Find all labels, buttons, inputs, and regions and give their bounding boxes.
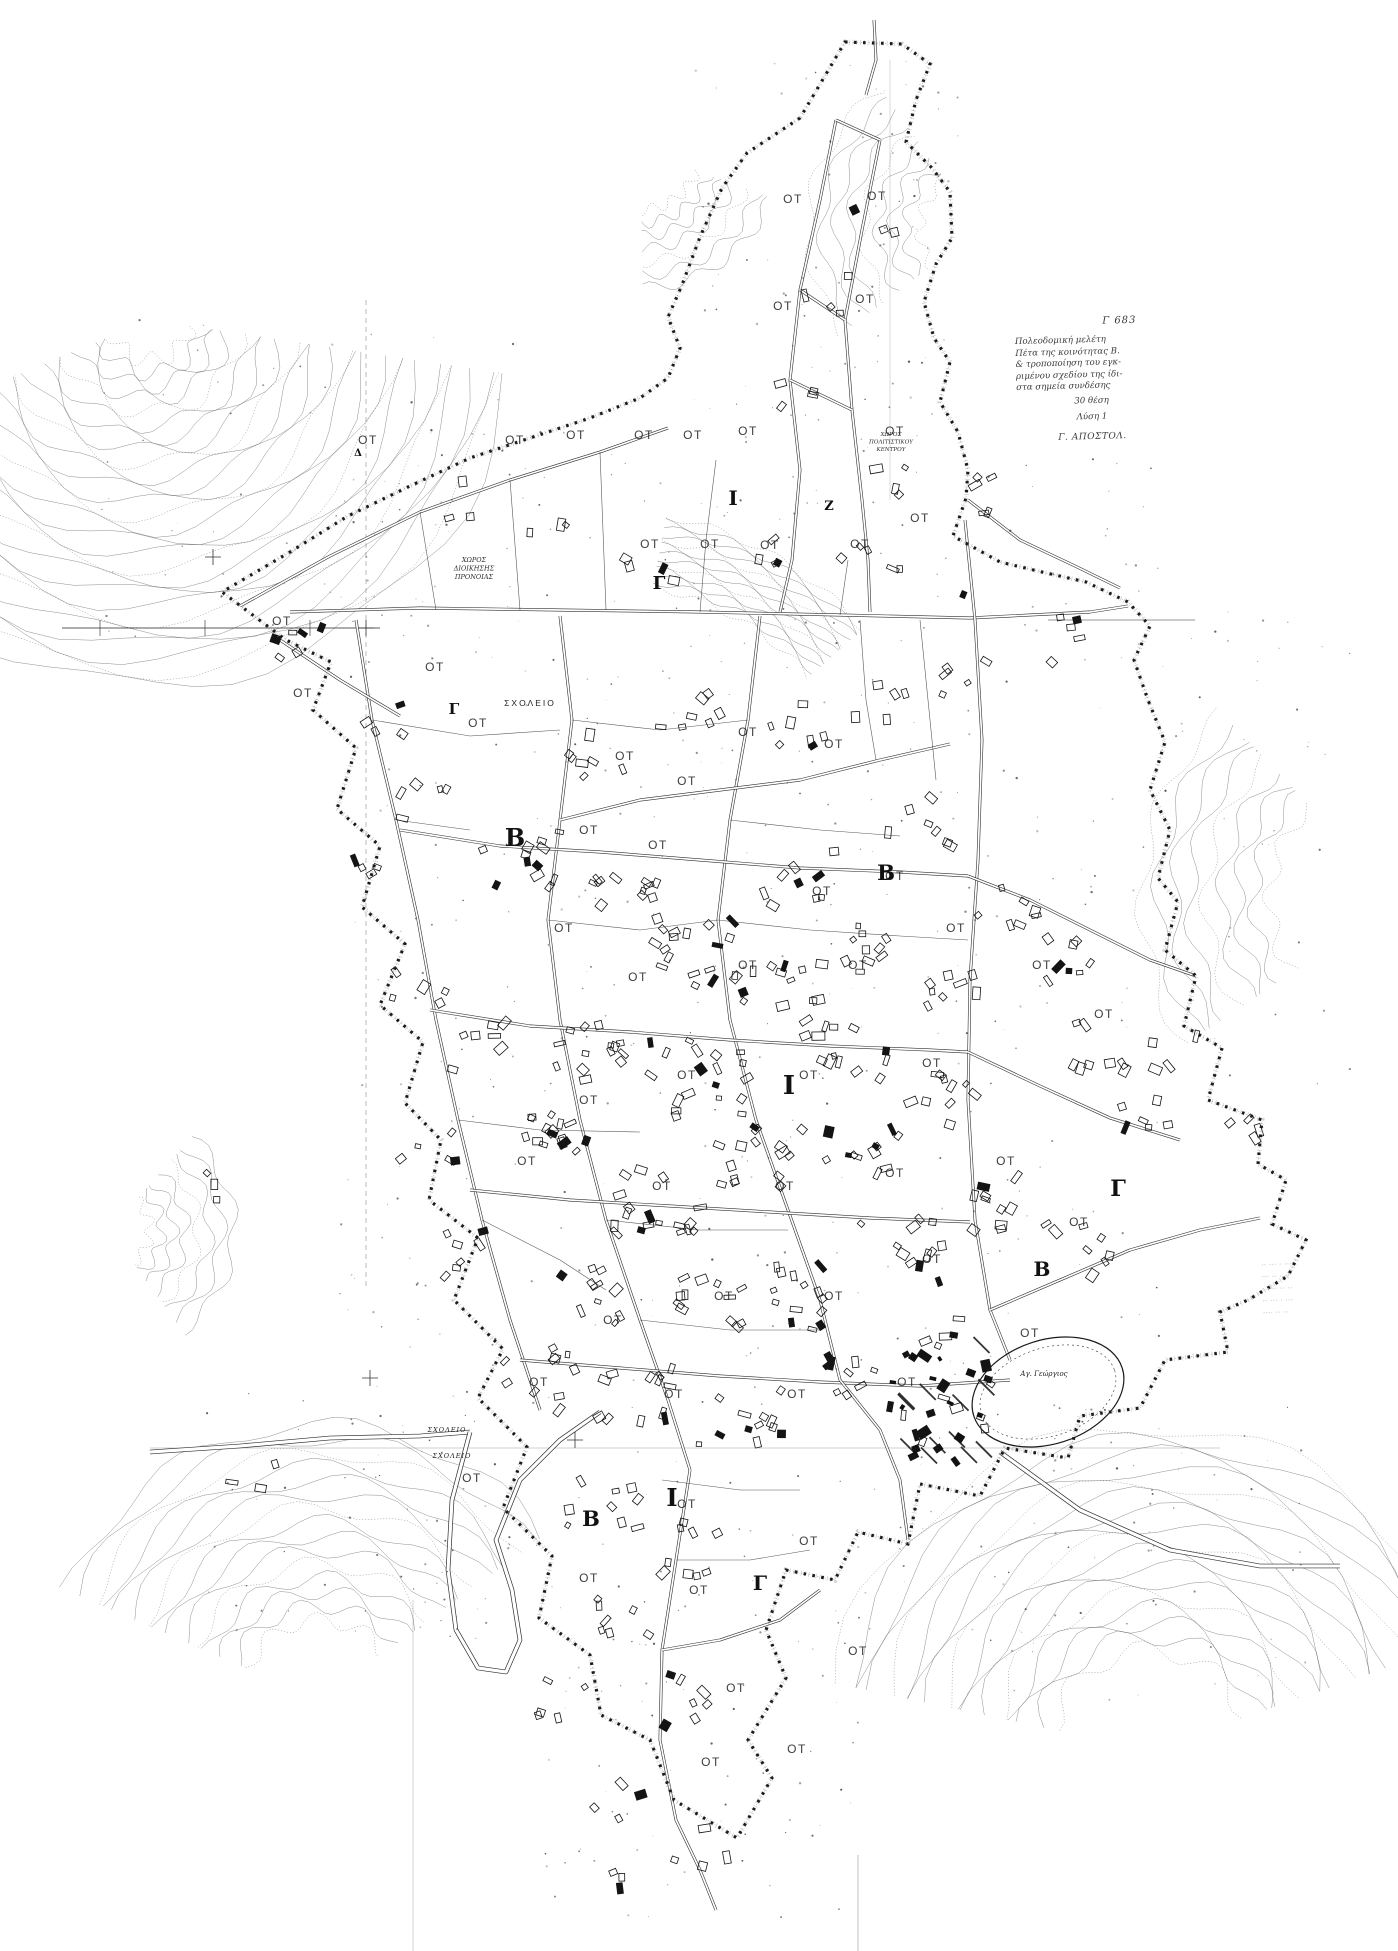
- building: [289, 630, 297, 635]
- building: [697, 1685, 711, 1699]
- building: [845, 1153, 851, 1158]
- building: [554, 1392, 565, 1400]
- building: [708, 974, 719, 987]
- building: [594, 1299, 601, 1305]
- building: [568, 754, 576, 762]
- building: [500, 1356, 509, 1365]
- area-label: ΧΩΡΟΣ: [880, 432, 902, 438]
- building: [588, 1264, 597, 1272]
- building: [664, 952, 673, 963]
- place-label: ΣΧΟΛΕΙΟ: [432, 1452, 472, 1460]
- building: [691, 981, 700, 989]
- building: [716, 1096, 721, 1101]
- ot-block-label: ΟΤ: [700, 537, 720, 551]
- town-plan-map: ΟΤΟΤΟΤΟΤΟΤΟΤΟΤΟΤΟΤΟΤΟΤΟΤΟΤΟΤΟΤΟΤΟΤΟΤΟΤΟΤ…: [0, 0, 1398, 1951]
- ot-block-label: ΟΤ: [848, 1644, 868, 1658]
- building: [759, 887, 769, 900]
- building: [658, 925, 667, 934]
- ot-block-label: ΟΤ: [760, 538, 780, 552]
- building: [968, 479, 982, 491]
- building: [740, 1073, 753, 1085]
- ot-block-label: ΟΤ: [358, 433, 378, 447]
- building: [725, 933, 735, 943]
- building: [873, 680, 883, 689]
- building: [921, 1097, 930, 1106]
- ot-block-label: ΟΤ: [603, 1313, 623, 1327]
- building: [885, 826, 892, 838]
- building: [919, 1336, 932, 1347]
- building: [478, 845, 487, 853]
- building: [579, 1075, 592, 1085]
- ot-block-label: ΟΤ: [1032, 958, 1052, 972]
- building: [275, 653, 285, 662]
- building: [565, 1351, 570, 1358]
- area-label: ΚΕΝΤΡΟΥ: [876, 447, 907, 453]
- ot-block-label: ΟΤ: [566, 428, 586, 442]
- building: [776, 1267, 786, 1278]
- building: [648, 893, 658, 903]
- building: [1085, 1268, 1099, 1282]
- building: [844, 1368, 853, 1377]
- building: [850, 1152, 862, 1160]
- building: [211, 1179, 218, 1189]
- building: [849, 1023, 860, 1032]
- building: [396, 787, 407, 800]
- ot-block-label: ΟΤ: [689, 1583, 709, 1597]
- building: [714, 1280, 722, 1288]
- ot-block-label: ΟΤ: [272, 614, 292, 628]
- building: [871, 1367, 878, 1373]
- building: [565, 1522, 571, 1529]
- building: [905, 804, 915, 814]
- building: [851, 711, 860, 722]
- building: [738, 1111, 746, 1117]
- building: [203, 1169, 211, 1177]
- building: [458, 476, 467, 487]
- ot-block-label: ΟΤ: [652, 1179, 672, 1193]
- building: [1249, 1132, 1261, 1146]
- building: [1152, 1095, 1161, 1106]
- building: [619, 1873, 625, 1881]
- church-square-oval: [958, 1318, 1139, 1465]
- ot-block-label: ΟΤ: [425, 660, 445, 674]
- building: [554, 1713, 562, 1723]
- ot-block-label: ΟΤ: [885, 1166, 905, 1180]
- building: [466, 513, 474, 521]
- building: [596, 1266, 606, 1275]
- building: [397, 728, 409, 739]
- building: [808, 741, 817, 750]
- building: [844, 272, 852, 279]
- building: [1083, 1246, 1092, 1255]
- building: [815, 1260, 827, 1273]
- ot-block-label: ΟΤ: [848, 958, 868, 972]
- section-letter: Ι: [728, 486, 737, 510]
- building: [888, 1123, 897, 1135]
- building: [629, 1606, 637, 1615]
- building: [1068, 1059, 1079, 1071]
- building: [1117, 1058, 1127, 1070]
- building: [776, 1000, 790, 1011]
- building: [619, 1169, 631, 1180]
- building: [1052, 960, 1065, 974]
- building: [637, 890, 647, 900]
- area-label: ΠΟΛΙΤΙΣΤΙΚΟΥ: [868, 440, 914, 446]
- ot-block-label: ΟΤ: [799, 1068, 819, 1082]
- building: [894, 490, 903, 499]
- building: [996, 1204, 1005, 1214]
- section-letter: Ι: [783, 1071, 795, 1101]
- building: [609, 872, 621, 883]
- building: [705, 718, 714, 728]
- ot-block-label: ΟΤ: [468, 716, 488, 730]
- building: [548, 1344, 557, 1353]
- building: [737, 1319, 746, 1328]
- building: [214, 1197, 220, 1203]
- area-label: ΔΙΟΙΚΗΣΗΣ: [453, 565, 495, 573]
- building: [577, 1063, 590, 1076]
- scanned-map-page: ΟΤΟΤΟΤΟΤΟΤΟΤΟΤΟΤΟΤΟΤΟΤΟΤΟΤΟΤΟΤΟΤΟΤΟΤΟΤΟΤ…: [0, 0, 1398, 1951]
- building: [690, 1713, 700, 1724]
- ot-block-label: ΟΤ: [505, 433, 525, 447]
- building: [730, 1175, 739, 1186]
- building: [576, 759, 589, 768]
- building: [702, 1568, 711, 1576]
- building: [1075, 1062, 1086, 1076]
- building: [710, 1050, 721, 1061]
- building: [576, 1305, 585, 1318]
- building: [595, 899, 608, 912]
- building: [908, 1452, 919, 1461]
- handwritten-annotation: Γ 683 Πολεοδομική μελέτηΠέτα της κοινότη…: [1014, 314, 1167, 444]
- building: [698, 1824, 711, 1833]
- building: [902, 464, 909, 471]
- building: [735, 1141, 747, 1152]
- building: [1138, 1117, 1148, 1125]
- building: [849, 204, 860, 215]
- building: [395, 1153, 406, 1164]
- ot-block-label: ΟΤ: [714, 1289, 734, 1303]
- building: [1072, 616, 1081, 624]
- building: [671, 1111, 681, 1122]
- building: [1086, 958, 1095, 967]
- building: [1042, 933, 1054, 945]
- building: [532, 860, 543, 871]
- building: [829, 847, 839, 856]
- building: [226, 1479, 239, 1485]
- building: [836, 553, 847, 564]
- building: [271, 1459, 279, 1469]
- building: [556, 1270, 567, 1281]
- ot-block-label: ΟΤ: [922, 1252, 942, 1266]
- settlement-boundary: [222, 42, 1306, 1838]
- building: [953, 979, 967, 989]
- building: [766, 899, 780, 911]
- building: [937, 1241, 946, 1251]
- building: [856, 923, 861, 929]
- ot-block-label: ΟΤ: [783, 192, 803, 206]
- ot-block-label: ΟΤ: [579, 1093, 599, 1107]
- contour-lines: [0, 93, 1398, 1731]
- building: [662, 1047, 670, 1058]
- building: [668, 576, 680, 586]
- building: [968, 1088, 981, 1100]
- building: [668, 927, 680, 938]
- building: [1225, 1118, 1236, 1129]
- building: [715, 1430, 725, 1439]
- building: [452, 1264, 460, 1271]
- building: [726, 1160, 736, 1172]
- building: [738, 1410, 751, 1418]
- building: [759, 1412, 769, 1421]
- building: [631, 1524, 644, 1532]
- building: [600, 1615, 611, 1626]
- ot-block-label: ΟΤ: [517, 1154, 537, 1168]
- building: [665, 1558, 672, 1566]
- building: [410, 778, 423, 791]
- building: [683, 1569, 693, 1579]
- building: [440, 1271, 450, 1281]
- register-cross: [362, 1370, 378, 1386]
- building: [488, 1034, 500, 1039]
- building: [777, 869, 789, 881]
- building: [655, 724, 666, 730]
- ot-block-label: ΟΤ: [677, 1068, 697, 1082]
- building: [441, 987, 449, 995]
- building: [696, 1442, 702, 1447]
- building: [660, 945, 670, 955]
- building: [576, 1475, 586, 1487]
- area-label: ΠΡΟΝΟΙΑΣ: [454, 573, 494, 581]
- building: [740, 997, 748, 1005]
- building: [852, 1356, 860, 1368]
- building: [645, 1070, 657, 1081]
- building: [656, 1566, 670, 1581]
- ot-block-label: ΟΤ: [462, 1471, 482, 1485]
- building: [582, 1050, 589, 1056]
- building: [737, 1284, 747, 1292]
- building: [822, 1156, 830, 1164]
- ot-block-label: ΟΤ: [579, 823, 599, 837]
- building: [790, 1271, 797, 1281]
- building: [530, 869, 544, 882]
- building: [981, 1424, 989, 1433]
- building: [444, 514, 454, 522]
- building: [953, 1316, 965, 1322]
- building: [869, 464, 883, 474]
- building: [808, 1326, 817, 1332]
- building: [656, 963, 668, 971]
- building: [924, 820, 933, 828]
- section-letters: ΓΙZΔΒΒΙΓΒΙΒΓΓ: [354, 448, 1126, 1595]
- building: [605, 1628, 613, 1638]
- building: [587, 757, 598, 767]
- ot-block-label: ΟΤ: [996, 1154, 1016, 1168]
- register-cross: [205, 549, 221, 565]
- building: [647, 1038, 653, 1048]
- building: [713, 1063, 722, 1075]
- building: [661, 1412, 668, 1425]
- building: [494, 1041, 509, 1055]
- ot-block-label: ΟΤ: [850, 537, 870, 551]
- building: [585, 728, 595, 741]
- ot-block-label: ΟΤ: [946, 921, 966, 935]
- building: [822, 1021, 829, 1032]
- building: [812, 1032, 825, 1041]
- building: [471, 1031, 480, 1040]
- building: [632, 1493, 643, 1505]
- building: [615, 1777, 628, 1790]
- building: [973, 473, 982, 482]
- building: [964, 679, 971, 686]
- building: [672, 1094, 684, 1108]
- place-label: ΣΧΟΛΕΙΟ: [504, 698, 556, 708]
- building: [768, 722, 774, 730]
- building: [857, 1220, 864, 1227]
- building: [823, 1126, 834, 1139]
- building: [745, 1426, 753, 1433]
- building: [572, 1147, 580, 1155]
- section-letter: Ι: [666, 1483, 677, 1512]
- building: [712, 1528, 723, 1538]
- building: [686, 713, 697, 721]
- building: [903, 1096, 918, 1108]
- ot-block-label: ΟΤ: [683, 428, 703, 442]
- building: [527, 528, 533, 537]
- building: [712, 1082, 719, 1089]
- ot-block-label: ΟΤ: [738, 958, 758, 972]
- building: [619, 553, 632, 565]
- section-letter: Β: [1034, 1257, 1051, 1281]
- ot-block-label: ΟΤ: [1094, 1007, 1114, 1021]
- building: [1011, 1170, 1023, 1183]
- ot-block-label: ΟΤ: [634, 428, 654, 442]
- building: [1079, 1018, 1091, 1032]
- building: [1048, 1224, 1062, 1239]
- building: [615, 1814, 623, 1823]
- building: [738, 987, 748, 997]
- building: [794, 878, 803, 888]
- building: [1041, 1220, 1051, 1229]
- ot-block-label: ΟΤ: [738, 424, 758, 438]
- building: [940, 1075, 947, 1084]
- building: [492, 880, 501, 890]
- building: [581, 1683, 588, 1690]
- building: [776, 1386, 785, 1395]
- building: [812, 871, 824, 882]
- section-letter: Δ: [354, 448, 362, 459]
- ot-block-label: ΟΤ: [529, 1375, 549, 1389]
- ot-block-label: ΟΤ: [1069, 1215, 1089, 1229]
- building: [981, 1359, 992, 1372]
- building: [816, 959, 829, 969]
- building: [617, 1517, 626, 1528]
- building: [645, 1372, 655, 1383]
- building: [543, 1677, 553, 1685]
- building: [931, 826, 941, 836]
- building: [693, 1572, 700, 1580]
- ot-block-label: ΟΤ: [640, 537, 660, 551]
- section-letter: Z: [824, 499, 834, 514]
- ot-block-label: ΟΤ: [855, 292, 875, 306]
- building: [831, 1053, 836, 1060]
- ot-block-label: ΟΤ: [773, 299, 793, 313]
- building: [1097, 1233, 1106, 1242]
- ot-block-label: ΟΤ: [812, 884, 832, 898]
- building: [790, 1306, 802, 1313]
- building: [717, 1180, 727, 1188]
- building: [980, 656, 992, 666]
- building: [627, 1483, 637, 1493]
- building: [833, 1389, 841, 1396]
- building: [977, 1182, 990, 1191]
- building: [1014, 920, 1027, 930]
- building: [777, 401, 787, 412]
- building: [753, 1437, 761, 1449]
- building: [777, 1430, 785, 1438]
- building: [609, 1283, 623, 1297]
- building: [798, 701, 808, 708]
- annotation-body: Πολεοδομική μελέτηΠέτα της κοινότητας Β.…: [1015, 333, 1166, 395]
- building: [442, 784, 451, 794]
- building: [875, 1073, 885, 1084]
- building: [799, 1030, 811, 1041]
- building: [945, 1098, 955, 1108]
- ot-block-label: ΟΤ: [787, 1742, 807, 1756]
- building: [649, 937, 662, 948]
- building: [634, 1789, 647, 1800]
- building: [1029, 905, 1041, 918]
- building: [767, 961, 777, 971]
- building: [722, 1851, 731, 1864]
- building: [580, 772, 588, 780]
- building: [548, 1111, 556, 1119]
- building: [702, 1700, 712, 1710]
- building: [1071, 936, 1082, 947]
- building: [774, 379, 787, 389]
- building: [787, 977, 795, 984]
- register-cross: [358, 620, 374, 636]
- building: [676, 1674, 685, 1685]
- building: [609, 1868, 618, 1876]
- building: [524, 857, 531, 866]
- ot-block-label: ΟΤ: [897, 1375, 917, 1389]
- building: [443, 1229, 451, 1238]
- building: [607, 1502, 617, 1512]
- building: [1043, 975, 1052, 986]
- building: [594, 1020, 603, 1030]
- building: [1104, 1058, 1115, 1068]
- building: [1066, 968, 1072, 974]
- building: [689, 1699, 697, 1708]
- building: [925, 792, 938, 805]
- building: [612, 1488, 620, 1494]
- building: [389, 994, 396, 1001]
- ot-block-label: ΟΤ: [922, 1056, 942, 1070]
- building: [713, 1141, 725, 1150]
- building: [688, 970, 700, 978]
- section-letter: Γ: [753, 1571, 767, 1595]
- building: [619, 764, 627, 775]
- building: [415, 1144, 421, 1149]
- building: [943, 970, 953, 980]
- building: [1163, 1121, 1173, 1129]
- ot-block-label: ΟΤ: [554, 921, 574, 935]
- building: [683, 928, 691, 939]
- building: [556, 518, 565, 531]
- section-letter: Β: [582, 1506, 600, 1531]
- ot-block-label: ΟΤ: [628, 970, 648, 984]
